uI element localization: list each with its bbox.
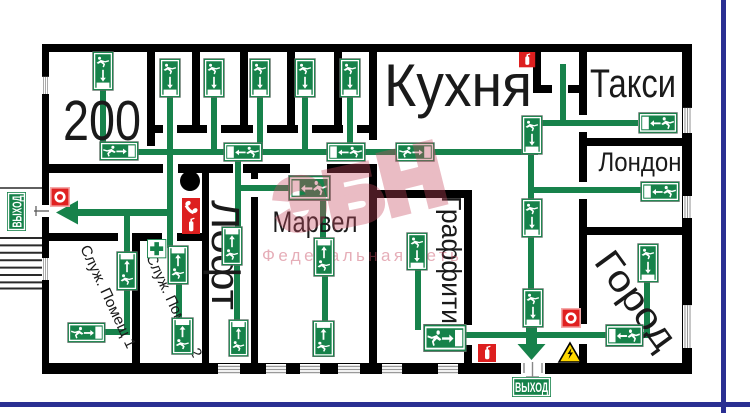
svg-text:Федеральная сеть: Федеральная сеть: [262, 246, 462, 265]
svg-text:ВЫХОД: ВЫХОД: [10, 195, 25, 227]
svg-text:Лондон: Лондон: [599, 147, 682, 177]
svg-text:ВЫХОД: ВЫХОД: [515, 380, 548, 395]
svg-text:Такси: Такси: [590, 62, 676, 106]
svg-text:Кухня: Кухня: [384, 52, 532, 119]
